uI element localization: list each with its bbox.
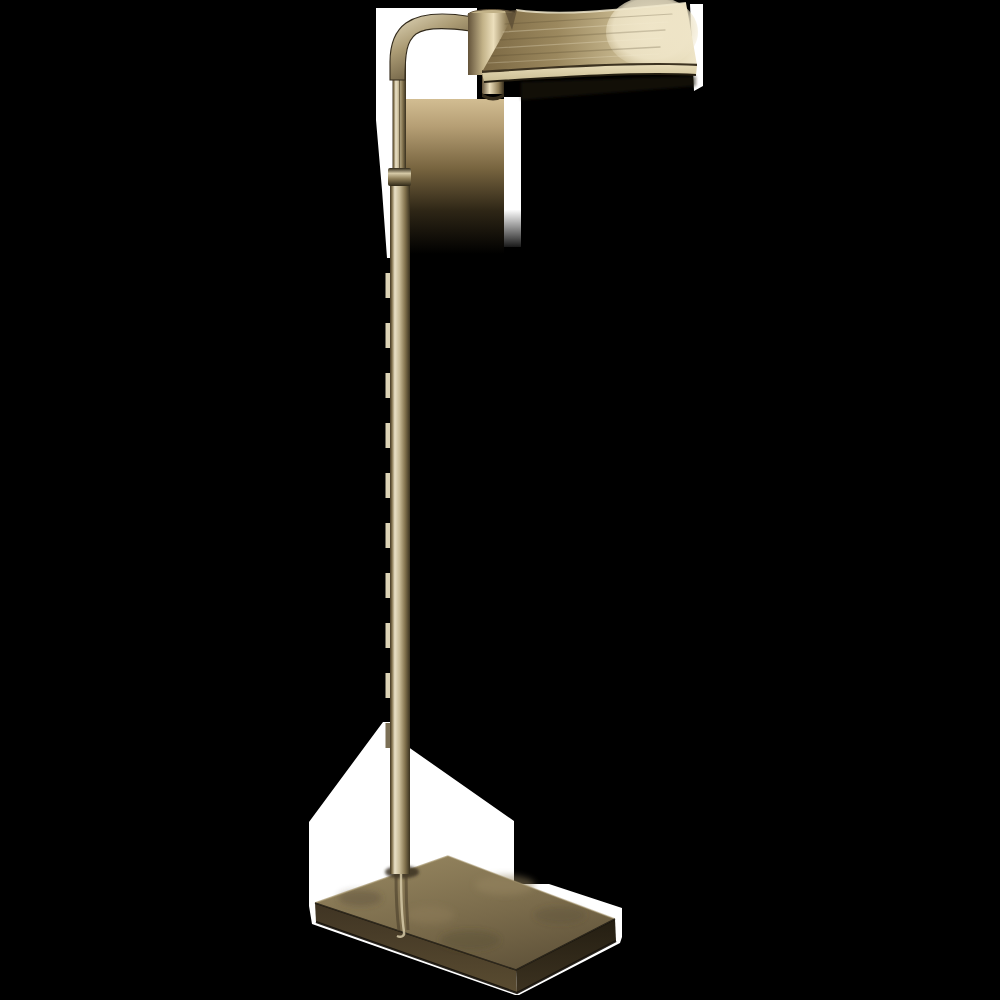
product-image [0,0,1000,1000]
lamp-shade [482,0,698,82]
backdrop-strip-under-shade [504,97,521,247]
pole-lower-tube [390,184,410,874]
pole-joint-collar [388,168,411,186]
shade-shadow-column [404,99,504,254]
floor-lamp-photo [0,0,1000,1000]
